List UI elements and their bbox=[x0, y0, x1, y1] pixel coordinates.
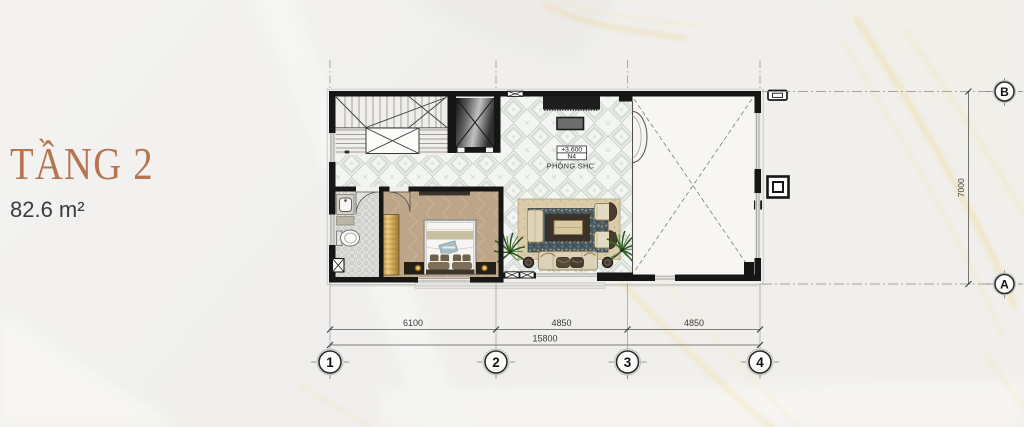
svg-text:A: A bbox=[1000, 278, 1009, 292]
svg-text:4850: 4850 bbox=[551, 318, 571, 328]
svg-text:15800: 15800 bbox=[532, 334, 557, 344]
svg-text:2: 2 bbox=[492, 355, 500, 370]
svg-text:4: 4 bbox=[756, 355, 764, 370]
svg-text:1: 1 bbox=[326, 355, 334, 370]
svg-text:N4: N4 bbox=[567, 154, 576, 161]
svg-text:B: B bbox=[1000, 85, 1009, 99]
svg-text:6100: 6100 bbox=[403, 318, 423, 328]
svg-text:4850: 4850 bbox=[684, 318, 704, 328]
svg-text:7000: 7000 bbox=[956, 178, 966, 197]
svg-text:PHÒNG SHC: PHÒNG SHC bbox=[547, 162, 595, 171]
svg-text:3: 3 bbox=[624, 355, 632, 370]
